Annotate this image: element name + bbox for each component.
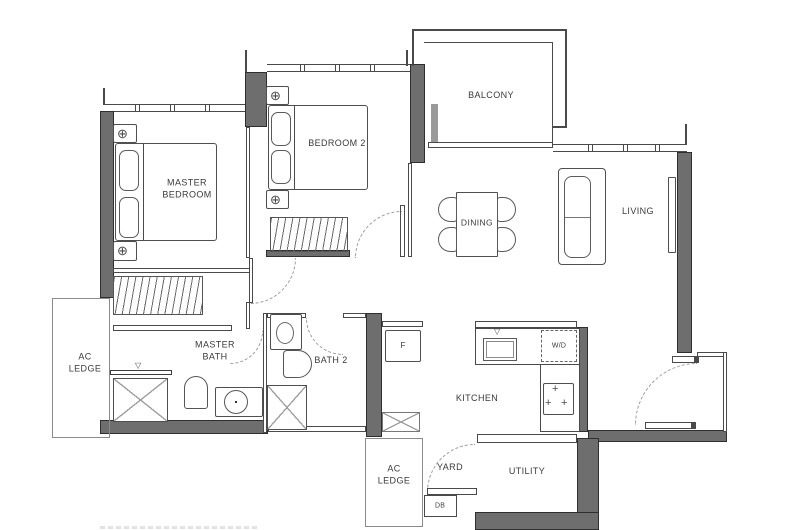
wall-extension-line xyxy=(406,50,408,66)
door-arc-master-bedroom xyxy=(250,258,296,304)
master-toilet xyxy=(184,376,208,409)
wall-extension-line xyxy=(103,88,105,105)
db-label: DB xyxy=(435,501,445,510)
room-label-master-bath: MASTER BATH xyxy=(191,339,239,362)
pillow xyxy=(119,150,139,191)
washer-dryer-label: W/D xyxy=(552,341,566,350)
floor-plan: ⊕ ⊕ ⊕ ⊕ ▽ W/D F + + + ▽ xyxy=(0,0,800,530)
balcony-outline-top xyxy=(412,29,567,31)
window-mullion xyxy=(374,65,375,71)
ledge-hatch-box xyxy=(382,412,420,432)
bath2-basin xyxy=(276,322,294,344)
bed-line xyxy=(143,144,144,240)
balcony-outline-left xyxy=(412,29,414,66)
window-living xyxy=(553,144,687,152)
window-mullion xyxy=(174,105,175,111)
wall-utility-south xyxy=(475,512,599,530)
door-arc-bedroom2 xyxy=(355,211,402,258)
master-shower xyxy=(113,378,168,422)
window-mullion xyxy=(135,105,136,111)
wall-extension-line xyxy=(245,50,247,74)
tap-icon: ▽ xyxy=(494,328,500,336)
bath2-shower xyxy=(267,385,307,430)
window-mullion xyxy=(592,145,593,151)
master-wardrobe xyxy=(113,276,203,315)
corner-unit-icon: ⊕ xyxy=(270,89,281,102)
dining-chair xyxy=(497,227,516,252)
wall-masterbath-south xyxy=(100,420,268,434)
window-mullion xyxy=(627,145,628,151)
balcony-outline-right xyxy=(565,29,567,128)
room-label-master-bedroom: MASTER BEDROOM xyxy=(155,177,219,200)
window-mullion xyxy=(205,105,206,111)
door-hinge xyxy=(691,422,696,429)
wall-shower-master xyxy=(110,370,172,375)
room-label-utility: UTILITY xyxy=(497,466,557,478)
wall-foyer-east xyxy=(723,352,727,432)
room-label-kitchen: KITCHEN xyxy=(447,393,507,405)
pillow xyxy=(271,112,291,146)
window-mullion xyxy=(209,105,210,111)
door-leaf-entry-bottom xyxy=(645,422,695,429)
window-mullion xyxy=(170,105,171,111)
corner-unit-icon: ⊕ xyxy=(270,193,281,206)
room-label-balcony: BALCONY xyxy=(451,90,531,102)
window-mullion xyxy=(370,65,371,71)
balcony-sliding-door xyxy=(428,142,553,148)
window-mullion xyxy=(139,105,140,111)
room-label-ac-ledge-bottom: AC LEDGE xyxy=(375,463,413,486)
wall-dining-west xyxy=(408,163,412,257)
corner-unit-icon: ⊕ xyxy=(117,127,128,140)
wall-bath2-north-b xyxy=(343,313,366,318)
window-mullion xyxy=(655,145,656,151)
window-mullion xyxy=(623,145,624,151)
sofa-cushion-split xyxy=(565,217,590,218)
pillow xyxy=(271,150,291,184)
burner-icon: + xyxy=(552,384,558,395)
room-label-living: LIVING xyxy=(608,206,668,218)
wall-masterbath-north xyxy=(113,325,232,331)
wall-utility-north xyxy=(477,434,577,443)
fridge-label: F xyxy=(400,341,405,351)
door-leaf-yard xyxy=(427,488,477,495)
window-master-bedroom xyxy=(103,104,245,112)
burner-icon: + xyxy=(561,398,567,409)
tv-console xyxy=(668,177,676,253)
room-label-ac-ledge-left: AC LEDGE xyxy=(66,351,104,374)
kitchen-sink-basin xyxy=(486,341,514,358)
wall-column-bedrooms xyxy=(245,72,267,127)
wall-extension-line xyxy=(685,124,687,145)
dining-chair xyxy=(497,197,516,222)
bed-line xyxy=(294,106,295,189)
window-mullion xyxy=(304,65,305,71)
bedroom2-wardrobe xyxy=(270,217,348,252)
wall-master-south xyxy=(113,268,250,273)
window-bedroom2 xyxy=(267,64,410,72)
dining-chair xyxy=(438,227,457,252)
wall-corridor-west xyxy=(246,302,250,329)
window-mullion xyxy=(659,145,660,151)
pillow xyxy=(119,197,139,238)
wall-fridge-north xyxy=(382,321,423,327)
door-arc-entry xyxy=(635,363,697,425)
room-label-bedroom2: BEDROOM 2 xyxy=(297,138,377,150)
corner-unit-icon: ⊕ xyxy=(117,244,128,257)
room-label-bath2: BATH 2 xyxy=(304,355,358,367)
window-mullion xyxy=(300,65,301,71)
room-label-yard: YARD xyxy=(428,462,472,474)
dining-chair xyxy=(438,197,457,222)
room-label-dining: DINING xyxy=(456,217,498,228)
illegible-fine-print xyxy=(100,526,260,529)
wall-entry-south xyxy=(588,430,727,442)
wall-bath2-east xyxy=(366,313,382,437)
wall-kitchen-north xyxy=(475,321,577,328)
wall-bedroom-divider xyxy=(246,127,250,258)
window-mullion xyxy=(335,65,336,71)
window-mullion xyxy=(339,65,340,71)
balcony-step-line xyxy=(553,126,567,128)
door-hinge xyxy=(694,356,699,363)
burner-icon: + xyxy=(545,398,551,409)
basin-drain xyxy=(235,401,237,403)
tap-icon: ▽ xyxy=(135,362,141,370)
wall-column-balcony xyxy=(410,64,425,163)
wall-master-west xyxy=(100,111,114,298)
wall-living-east xyxy=(677,152,692,353)
window-mullion xyxy=(588,145,589,151)
door-arc-bath2 xyxy=(306,318,343,355)
